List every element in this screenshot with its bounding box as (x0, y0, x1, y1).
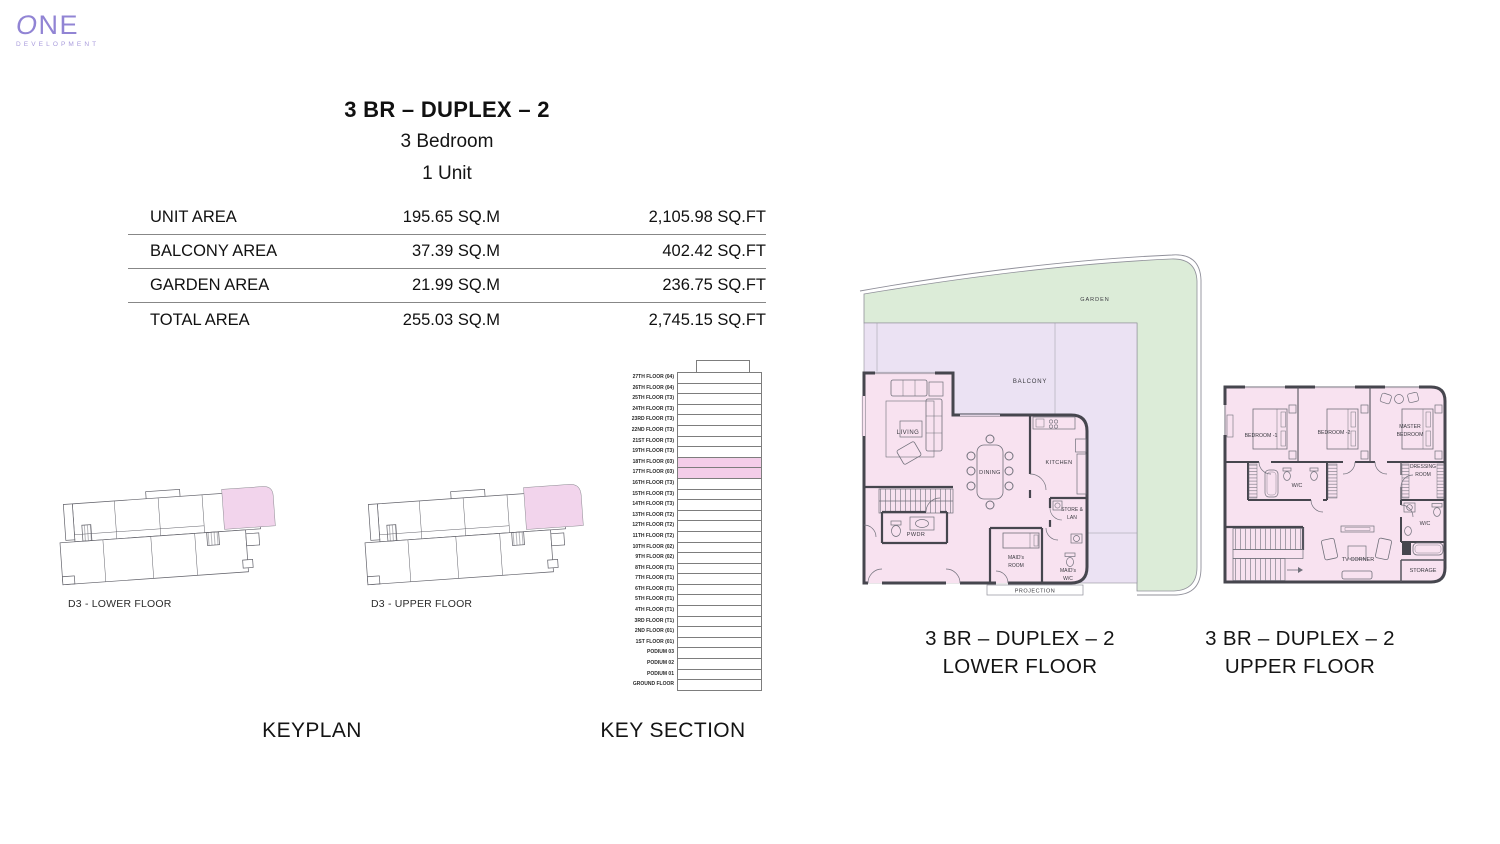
area-table-row: BALCONY AREA 37.39 SQ.M 402.42 SQ.FT (128, 235, 766, 269)
maids-room-label-1: MAID's (1008, 555, 1024, 561)
wc-top-label: W/C (1292, 483, 1303, 489)
upper-floor-plan-drawing: W/C DRESSING ROOM W/C (1215, 375, 1460, 605)
upper-plan-caption-line1: 3 BR – DUPLEX – 2 (1205, 625, 1395, 653)
subtitle-bedrooms: 3 Bedroom (128, 130, 766, 154)
tv-corner-label: TV CORNER (1342, 557, 1374, 563)
maids-wc-label-1: MAID's (1060, 568, 1076, 574)
living-label: LIVING (897, 430, 920, 436)
area-row-sqft: 402.42 SQ.FT (500, 242, 766, 261)
key-section-caption: KEY SECTION (600, 719, 745, 743)
key-section-tower: 27TH FLOOR (04) 26TH FLOOR (04) 25TH FLO… (620, 360, 762, 691)
lower-plan-caption-line1: 3 BR – DUPLEX – 2 (925, 625, 1115, 653)
page-title: 3 BR – DUPLEX – 2 (128, 97, 766, 123)
lower-floor-plan-drawing: GARDEN BALCONY (850, 250, 1210, 610)
pwdr-label: PWDR (907, 532, 925, 538)
garden-label: GARDEN (1080, 297, 1110, 303)
area-row-label: TOTAL AREA (150, 311, 388, 330)
area-row-sqm: 255.03 SQ.M (388, 311, 500, 330)
subtitle-units: 1 Unit (128, 162, 766, 186)
master-label-2: BEDROOM (1397, 432, 1424, 438)
area-row-label: BALCONY AREA (150, 242, 388, 261)
area-table-row: UNIT AREA 195.65 SQ.M 2,105.98 SQ.FT (128, 201, 766, 235)
keyplan-highlighted-unit (222, 486, 276, 529)
area-table-row: TOTAL AREA 255.03 SQ.M 2,745.15 SQ.FT (128, 303, 766, 337)
projection-label: PROJECTION (1015, 589, 1055, 595)
floor-box (677, 679, 762, 691)
maids-wc-label-2: W/C (1063, 576, 1073, 582)
area-row-label: GARDEN AREA (150, 276, 388, 295)
bedroom2-label: BEDROOM -2 (1318, 430, 1351, 436)
maids-room-label-2: ROOM (1008, 563, 1024, 569)
dressing-label-2: ROOM (1415, 472, 1431, 478)
area-row-sqft: 2,745.15 SQ.FT (500, 311, 766, 330)
store-label-1: STORE & (1061, 507, 1084, 513)
area-row-sqm: 195.65 SQ.M (388, 208, 500, 227)
keyplan-lower-label: D3 - LOWER FLOOR (68, 598, 172, 610)
master-label-1: MASTER (1399, 424, 1421, 430)
keyplan-lower-drawing (55, 483, 290, 595)
keyplan-caption: KEYPLAN (262, 719, 362, 743)
store-label-2: LAN (1067, 515, 1077, 521)
dressing-label-1: DRESSING (1410, 464, 1436, 470)
floor-label: GROUND FLOOR (620, 679, 677, 691)
lower-plan-caption-line2: LOWER FLOOR (925, 653, 1115, 681)
upper-plan-caption: 3 BR – DUPLEX – 2 UPPER FLOOR (1205, 625, 1395, 680)
one-development-logo: ONE DEVELOPMENT (16, 12, 99, 48)
logo-wordmark: ONE (16, 12, 99, 39)
logo-o: O (16, 10, 39, 40)
area-row-sqft: 2,105.98 SQ.FT (500, 208, 766, 227)
area-row-label: UNIT AREA (150, 208, 388, 227)
logo-subtitle: DEVELOPMENT (16, 41, 99, 48)
keyplan-upper-label: D3 - UPPER FLOOR (371, 598, 472, 610)
area-row-sqm: 21.99 SQ.M (388, 276, 500, 295)
key-section-floor-row: GROUND FLOOR (620, 679, 762, 691)
tower-floors: 27TH FLOOR (04) 26TH FLOOR (04) 25TH FLO… (620, 372, 762, 691)
area-table: UNIT AREA 195.65 SQ.M 2,105.98 SQ.FT BAL… (128, 201, 766, 337)
brochure-page: ONE DEVELOPMENT 3 BR – DUPLEX – 2 3 Bedr… (0, 0, 1500, 844)
balcony-label: BALCONY (1013, 379, 1047, 385)
keyplan-upper-drawing (360, 483, 595, 595)
bedroom1-label: BEDROOM -1 (1245, 433, 1278, 439)
logo-ne: NE (39, 10, 80, 40)
kitchen-label: KITCHEN (1046, 460, 1073, 466)
area-row-sqm: 37.39 SQ.M (388, 242, 500, 261)
storage-label: STORAGE (1410, 568, 1437, 574)
keyplan-highlighted-unit (524, 484, 584, 530)
upper-plan-caption-line2: UPPER FLOOR (1205, 653, 1395, 681)
area-row-sqft: 236.75 SQ.FT (500, 276, 766, 295)
area-table-row: GARDEN AREA 21.99 SQ.M 236.75 SQ.FT (128, 269, 766, 303)
shaft (1402, 543, 1411, 555)
wc-right-label: W/C (1420, 521, 1431, 527)
dining-label: DINING (979, 470, 1001, 476)
projection-strip: PROJECTION (987, 585, 1083, 595)
title-block: 3 BR – DUPLEX – 2 3 Bedroom 1 Unit (128, 97, 766, 186)
lower-plan-caption: 3 BR – DUPLEX – 2 LOWER FLOOR (925, 625, 1115, 680)
